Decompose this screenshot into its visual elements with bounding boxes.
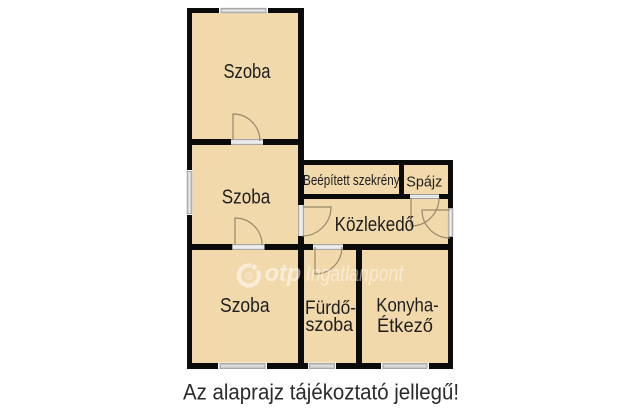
svg-text:szoba: szoba — [306, 314, 354, 336]
svg-text:Étkező: Étkező — [377, 314, 433, 337]
svg-text:Ingatlanpont: Ingatlanpont — [306, 261, 404, 286]
svg-text:otp: otp — [265, 260, 302, 287]
svg-text:Beépített szekrény: Beépített szekrény — [303, 172, 400, 189]
svg-text:Szoba: Szoba — [224, 61, 272, 83]
svg-text:Szoba: Szoba — [220, 295, 270, 317]
svg-text:Az alaprajz tájékoztató jelleg: Az alaprajz tájékoztató jellegű! — [183, 380, 459, 405]
svg-text:Szoba: Szoba — [222, 186, 271, 208]
svg-text:Konyha-: Konyha- — [376, 295, 439, 317]
svg-text:Közlekedő: Közlekedő — [335, 214, 415, 236]
svg-text:Spájz: Spájz — [406, 175, 442, 191]
